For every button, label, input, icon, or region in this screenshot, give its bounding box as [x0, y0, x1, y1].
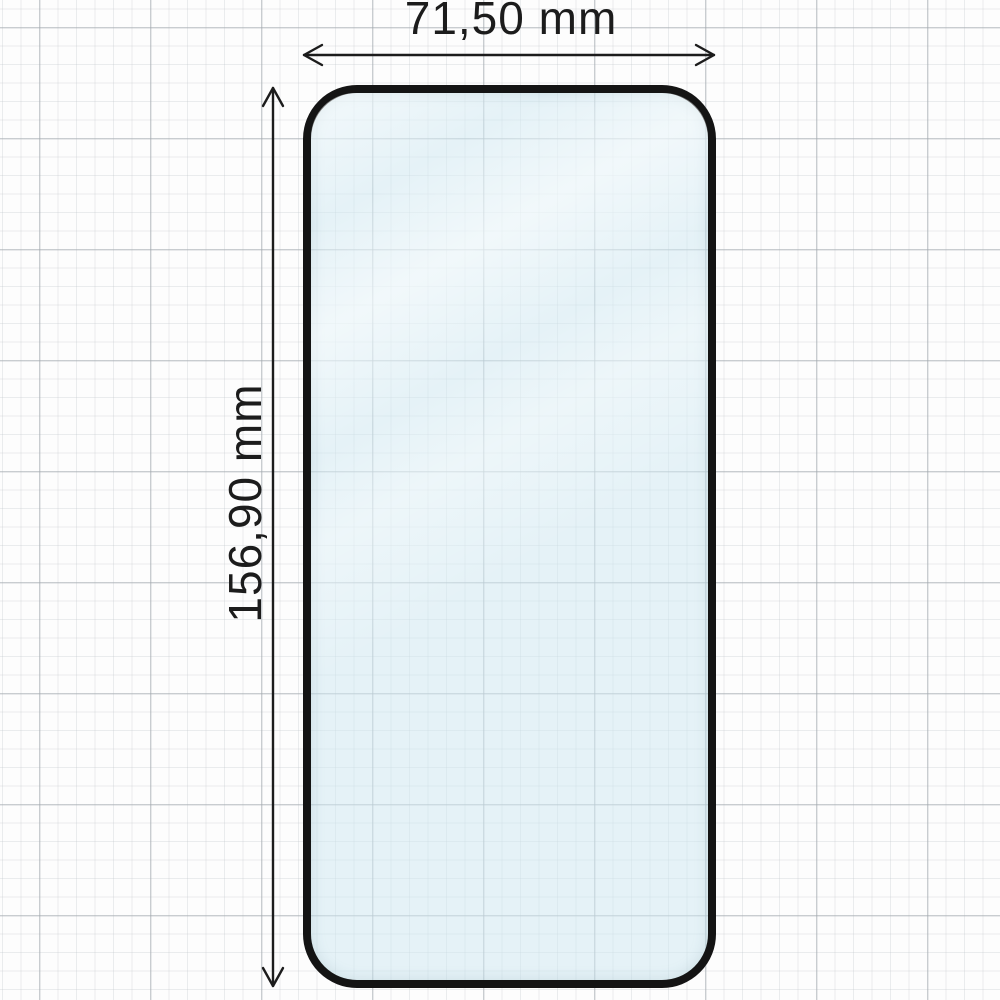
width-dimension-arrow-icon: [297, 41, 721, 69]
glass-reflection: [311, 93, 708, 980]
height-dimension-label: 156,90 mm: [222, 383, 268, 622]
diagram-canvas: 71,50 mm 156,90 mm: [0, 0, 1000, 1000]
width-dimension-label: 71,50 mm: [303, 0, 719, 41]
screen-protector-glass: [303, 85, 716, 988]
